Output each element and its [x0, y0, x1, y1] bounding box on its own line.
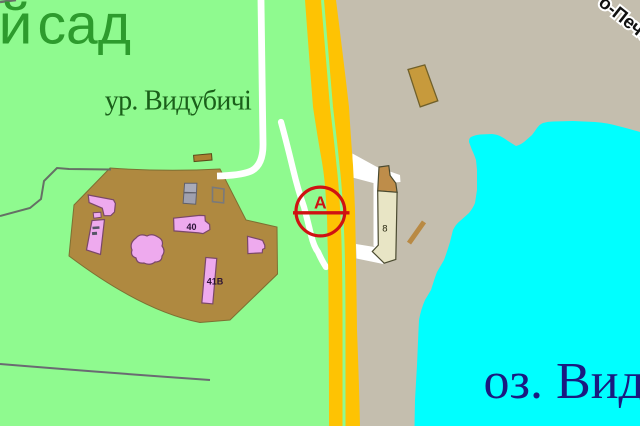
- svg-text:А: А: [314, 192, 327, 212]
- svg-text:41В: 41В: [207, 277, 224, 287]
- svg-text:40: 40: [187, 222, 197, 232]
- svg-text:ур. Видубичі: ур. Видубичі: [105, 86, 252, 117]
- svg-text:сад: сад: [38, 0, 131, 56]
- svg-text:8: 8: [382, 223, 387, 234]
- svg-text:оз. Виду: оз. Виду: [484, 353, 640, 410]
- svg-text:й: й: [0, 0, 33, 56]
